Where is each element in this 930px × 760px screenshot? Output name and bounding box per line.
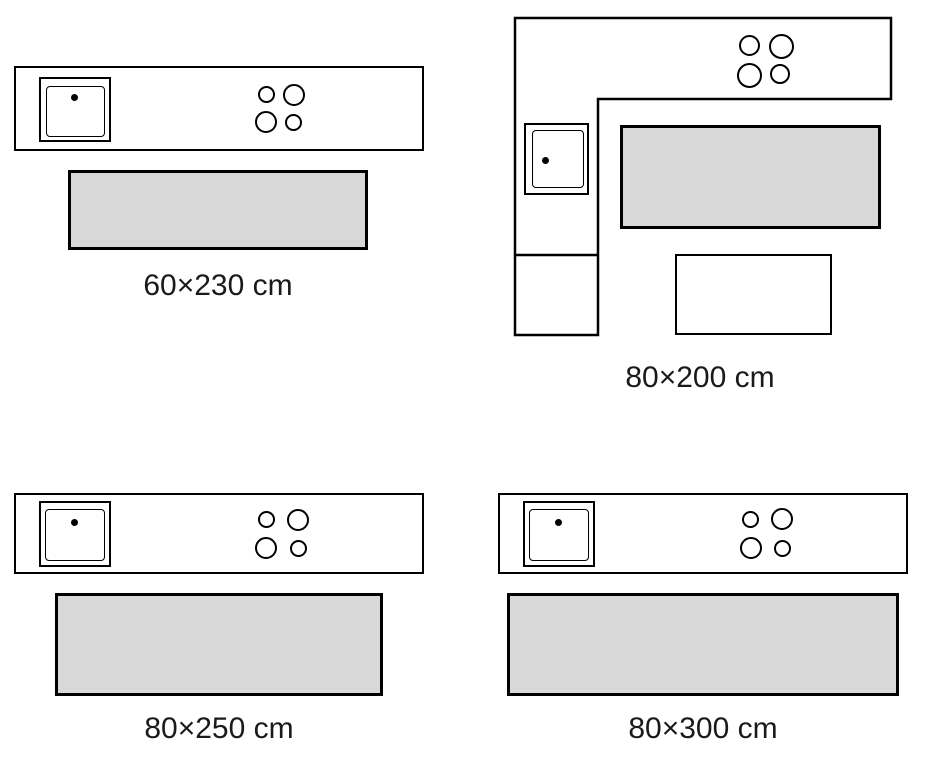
burner-icon (285, 114, 302, 131)
burner-icon (739, 35, 760, 56)
burner-icon (774, 540, 791, 557)
sink-basin (532, 130, 584, 188)
burner-icon (742, 511, 759, 528)
faucet-dot-icon (555, 519, 562, 526)
sink-basin (45, 509, 105, 561)
rug (507, 593, 899, 696)
burner-icon (255, 537, 277, 559)
burner-icon (255, 111, 277, 133)
burner-icon (258, 511, 275, 528)
rug (620, 125, 881, 229)
kitchen-rug-size-guide: 60×230 cm 80×200 cm 80 (0, 0, 930, 760)
faucet-dot-icon (71, 94, 78, 101)
burner-icon (283, 84, 305, 106)
faucet-dot-icon (542, 157, 549, 164)
rug-size-label: 80×200 cm (570, 361, 830, 395)
burner-icon (740, 537, 762, 559)
table (675, 254, 832, 335)
rug-size-label: 60×230 cm (68, 269, 368, 303)
rug-size-label: 80×300 cm (507, 712, 899, 746)
sink-basin (529, 509, 589, 561)
burner-icon (771, 508, 793, 530)
burner-icon (287, 509, 309, 531)
burner-icon (290, 540, 307, 557)
burner-icon (737, 63, 762, 88)
faucet-dot-icon (71, 519, 78, 526)
rug-size-label: 80×250 cm (55, 712, 383, 746)
rug (68, 170, 368, 250)
rug (55, 593, 383, 696)
burner-icon (258, 86, 275, 103)
burner-icon (770, 64, 790, 84)
burner-icon (769, 34, 794, 59)
